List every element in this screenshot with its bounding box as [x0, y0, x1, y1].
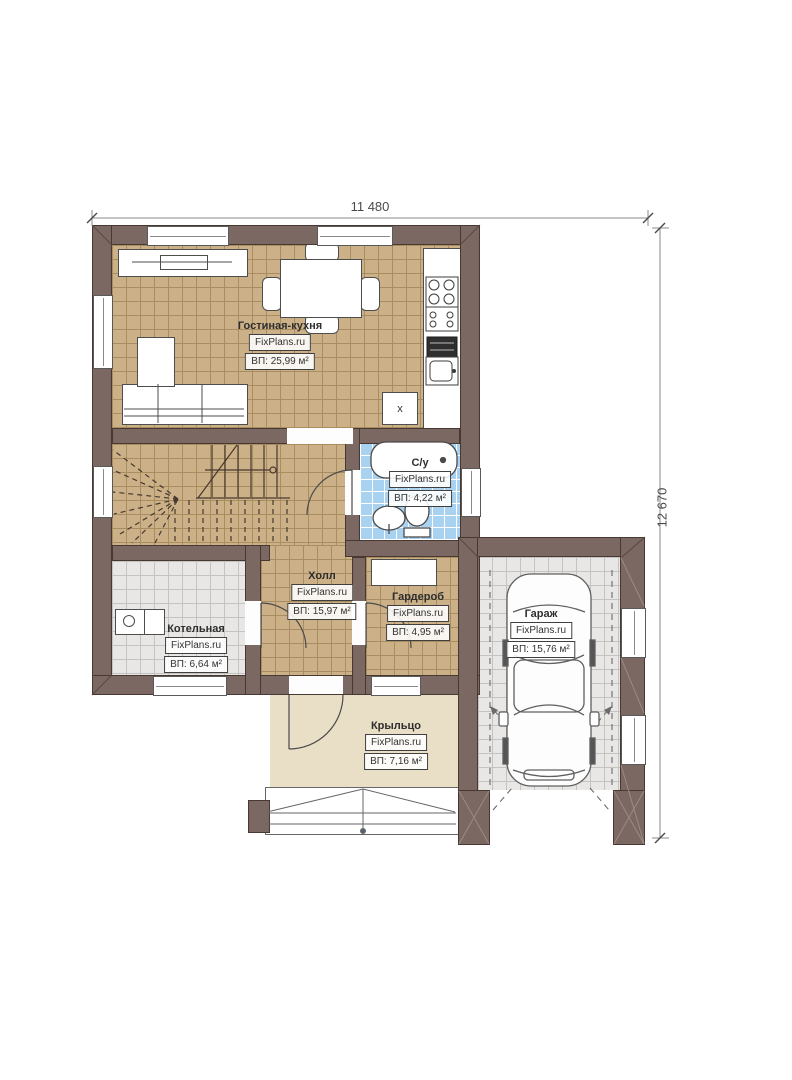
garage-door-pier-left — [458, 790, 490, 845]
fixplans-watermark-box: FixPlans.ru — [249, 334, 311, 351]
window-top-1 — [147, 226, 229, 246]
room-name: С/у — [411, 457, 428, 469]
room-area-box: ВП: 15,97 м² — [287, 603, 356, 620]
fixplans-watermark-box: FixPlans.ru — [389, 471, 451, 488]
boiler-unit — [115, 609, 146, 635]
room-label-hall: Холл FixPlans.ru ВП: 15,97 м² — [287, 570, 356, 620]
dimension-width-label: 11 480 — [92, 199, 648, 214]
kitchen-counter — [423, 248, 462, 432]
room-area-box: ВП: 15,76 м² — [506, 641, 575, 658]
room-label-garage: Гараж FixPlans.ru ВП: 15,76 м² — [506, 608, 575, 658]
fixplans-watermark-box: FixPlans.ru — [387, 605, 449, 622]
wardrobe-cabinet — [371, 559, 437, 586]
garage-floor — [478, 557, 620, 790]
window-left-stairs — [93, 466, 113, 518]
window-garage-1 — [621, 608, 646, 658]
room-label-porch: Крыльцо FixPlans.ru ВП: 7,16 м² — [364, 720, 428, 770]
room-area-box: ВП: 6,64 м² — [164, 656, 228, 673]
room-label-bathroom: С/у FixPlans.ru ВП: 4,22 м² — [388, 457, 452, 507]
kitchen-appliance-label: x — [397, 403, 403, 415]
porch-pillar — [248, 800, 270, 833]
sofa-seat — [122, 384, 248, 425]
bathroom-door-opening — [345, 470, 360, 515]
room-area-box: ВП: 4,95 м² — [386, 624, 450, 641]
window-bottom-hall — [371, 676, 421, 696]
room-label-living: Гостиная-кухня FixPlans.ru ВП: 25,99 м² — [238, 320, 322, 370]
dining-chair-left — [262, 277, 282, 311]
wall-bottom-house — [92, 675, 480, 695]
garage-door-pier-right — [613, 790, 645, 845]
floor-plan: x — [0, 0, 792, 1080]
fixplans-watermark-box: FixPlans.ru — [510, 622, 572, 639]
room-name: Холл — [308, 570, 336, 582]
window-bottom-boiler — [153, 676, 227, 696]
room-area-box: ВП: 25,99 м² — [245, 353, 314, 370]
dining-chair-right — [360, 277, 380, 311]
room-label-boiler: Котельная FixPlans.ru ВП: 6,64 м² — [164, 623, 228, 673]
front-door-opening — [289, 676, 343, 694]
room-area-box: ВП: 4,22 м² — [388, 490, 452, 507]
fixplans-watermark-box: FixPlans.ru — [365, 734, 427, 751]
room-label-wardrobe: Гардероб FixPlans.ru ВП: 4,95 м² — [386, 591, 450, 641]
porch-steps — [265, 787, 459, 835]
dining-table — [280, 259, 362, 318]
wall-living-divider — [112, 428, 460, 444]
kitchen-appliance-box: x — [382, 392, 418, 425]
window-top-2 — [317, 226, 393, 246]
boiler-unit-side — [144, 609, 165, 635]
passage-living-hall — [287, 428, 353, 444]
room-name: Котельная — [167, 623, 225, 635]
tv — [160, 255, 208, 270]
room-name: Гостиная-кухня — [238, 320, 322, 332]
window-left-living — [93, 295, 113, 369]
stairs-hall-floor — [112, 444, 345, 545]
boiler-door-opening — [245, 601, 261, 645]
window-garage-2 — [621, 715, 646, 765]
room-name: Гардероб — [392, 591, 444, 603]
window-bathroom — [461, 468, 481, 517]
room-name: Крыльцо — [371, 720, 421, 732]
dimension-height-label: 12 670 — [655, 480, 670, 536]
fixplans-watermark-box: FixPlans.ru — [291, 584, 353, 601]
fixplans-watermark-box: FixPlans.ru — [165, 637, 227, 654]
room-name: Гараж — [525, 608, 558, 620]
sofa-chaise — [137, 337, 175, 387]
room-area-box: ВП: 7,16 м² — [364, 753, 428, 770]
wall-garage-top — [458, 537, 645, 557]
